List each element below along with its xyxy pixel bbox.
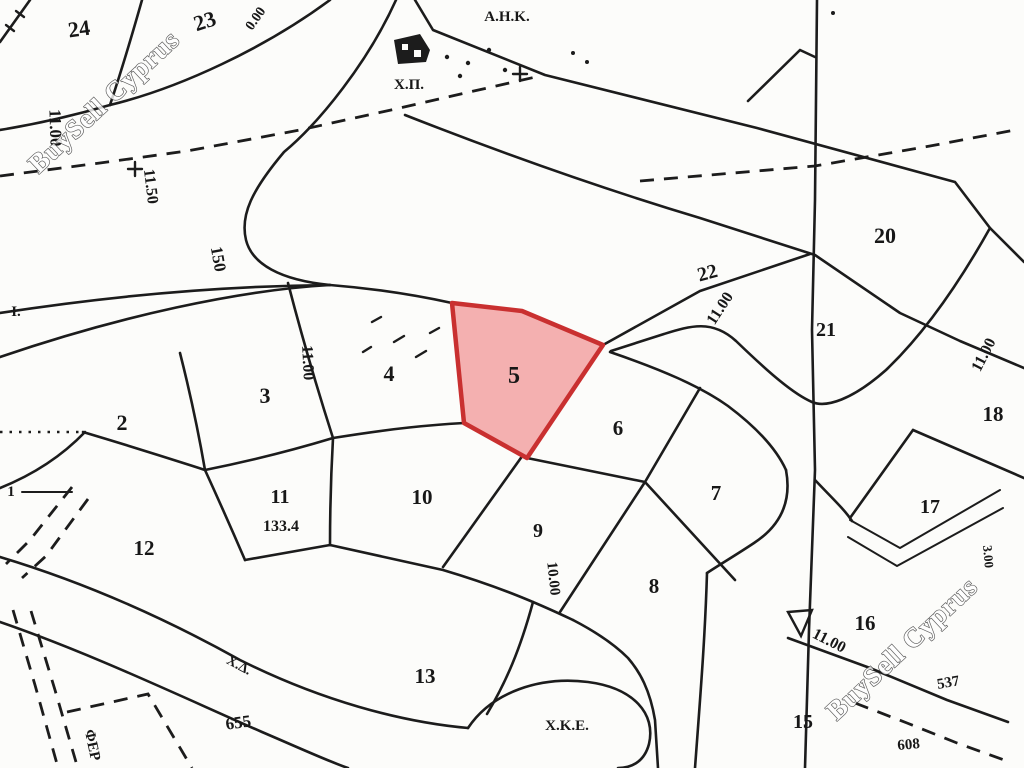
block-top-edge <box>0 285 330 357</box>
label-landmark-Χ.Κ.Ε.: Χ.Κ.Ε. <box>545 718 589 734</box>
fence-line <box>0 0 30 42</box>
label-parcel-2: 2 <box>117 410 128 435</box>
label-landmark-Χ.Δ.: Χ.Δ. <box>224 653 254 678</box>
boundary-12-west <box>0 432 85 488</box>
boundary-13-east <box>487 602 533 714</box>
boundary-7-8 <box>645 482 735 580</box>
label-parcel-24: 24 <box>66 15 91 43</box>
label-dimension-3.00: 3.00 <box>980 545 997 569</box>
label-dimension-150: 150 <box>207 245 230 273</box>
s-curve-road-edge <box>245 0 396 285</box>
boundary-21-curve <box>611 228 990 404</box>
label-ref-608: 608 <box>897 736 921 754</box>
label-ref-537: 537 <box>936 673 961 693</box>
boundary-6-top <box>610 352 786 470</box>
building-icon <box>394 34 430 64</box>
dashed-track-southwest-a <box>13 610 57 764</box>
sw-road-south-edge <box>0 622 348 768</box>
label-parcel-3: 3 <box>260 383 271 408</box>
label-dimension-0.00: 0.00 <box>243 5 269 34</box>
boundary-10-9 <box>443 455 523 567</box>
dashed-line-southeast <box>855 703 1007 761</box>
label-parcel-18: 18 <box>983 402 1004 426</box>
label-parcel-9: 9 <box>533 520 543 542</box>
label-ref-1: 1 <box>7 484 15 500</box>
boundary-6-7 <box>645 388 700 482</box>
dashed-track-southwest-b <box>31 611 76 762</box>
cadastral-map: 242323456789101112131516171820212211.001… <box>0 0 1024 768</box>
long-vertical-line <box>805 0 817 768</box>
label-parcel-21: 21 <box>816 319 836 341</box>
boundary-18-17 <box>913 430 1024 478</box>
peak-line <box>748 50 815 101</box>
label-parcel-17: 17 <box>920 496 940 518</box>
label-dimension-10.00: 10.00 <box>543 561 562 596</box>
label-parcel-15: 15 <box>793 711 813 733</box>
boundary-11-10 <box>330 438 333 545</box>
survey-cross-icon <box>128 162 142 176</box>
ahk-boundary-line <box>415 0 1024 262</box>
label-parcel-4: 4 <box>384 361 395 386</box>
block-top-edge-right <box>330 285 452 303</box>
label-parcel-8: 8 <box>649 574 660 598</box>
label-parcel-13: 13 <box>415 664 436 688</box>
label-parcel-11: 11 <box>271 486 290 508</box>
boundary-8-southwest <box>573 620 658 768</box>
label-parcel-5: 5 <box>508 363 520 389</box>
label-landmark-Ι.: Ι. <box>11 304 21 320</box>
label-parcel-20: 20 <box>874 223 896 248</box>
label-parcel-6: 6 <box>613 416 624 440</box>
dashed-track-west-a <box>6 487 72 564</box>
label-ref-655: 655 <box>224 711 252 733</box>
label-dimension-11.50: 11.50 <box>140 168 161 205</box>
boundary-11-12 <box>205 470 245 560</box>
label-dimension-11.00: 11.00 <box>298 345 317 381</box>
label-landmark-Χ.Π.: Χ.Π. <box>394 77 424 93</box>
sw-road-north-edge <box>0 557 468 728</box>
boundary-17-west <box>850 430 913 518</box>
boundary-11-south <box>245 545 330 560</box>
boundary-9-top <box>527 458 645 482</box>
block-bottom-arc <box>83 423 464 470</box>
parcel-5-highlight <box>452 303 603 458</box>
boundary-2-3 <box>180 353 205 470</box>
vegetation-marks <box>363 11 835 357</box>
boundary-9-8 <box>560 482 645 612</box>
dashed-line-northeast <box>640 130 1015 181</box>
label-parcel-22: 22 <box>695 260 720 286</box>
label-parcel-7: 7 <box>711 481 722 505</box>
label-parcel-16: 16 <box>855 611 876 635</box>
road-edge-south-east <box>695 573 707 768</box>
label-parcel-12: 12 <box>134 536 155 560</box>
label-parcel-10: 10 <box>412 485 433 509</box>
label-dimension-11.00: 11.00 <box>704 289 737 328</box>
label-dimension-133.4: 133.4 <box>263 518 299 535</box>
road-junction-16 <box>815 480 852 521</box>
map-canvas: 242323456789101112131516171820212211.001… <box>0 0 1024 768</box>
watermark-text: BuySell Cyprus <box>22 24 185 179</box>
label-landmark-Α.Η.Κ.: Α.Η.Κ. <box>484 9 530 25</box>
label-landmark-ΦΕΡ: ΦΕΡ <box>81 728 103 762</box>
label-parcel-23: 23 <box>190 6 219 37</box>
